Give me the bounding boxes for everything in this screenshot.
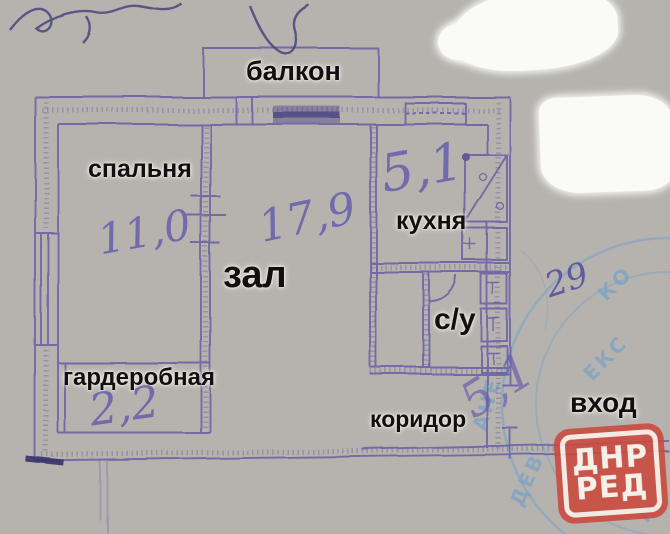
door-arc: [430, 275, 456, 301]
room-label-balcony: балкон: [246, 56, 341, 87]
pen-blob: [26, 459, 64, 463]
stamp-text-fragment: КО: [593, 261, 638, 306]
room-label-living-room: зал: [223, 254, 287, 297]
bedroom-window: [35, 233, 57, 345]
fixture: [481, 309, 507, 341]
stamp-text-fragment: ЕКС: [578, 330, 633, 385]
balcony-window-block: [273, 106, 340, 123]
floor-plan-photo: КО ЕКС АНЕ ДЕВ М: [0, 0, 670, 534]
pen-scribbles: [10, 4, 468, 54]
room-label-corridor: коридор: [370, 406, 466, 433]
fixture: [481, 274, 507, 304]
whiteout-patch: [438, 24, 478, 60]
room-label-bedroom: спальня: [88, 155, 192, 184]
dnr-red-watermark: ДНР РЕД: [553, 422, 669, 524]
room-label-bathroom: с/у: [434, 303, 476, 337]
area-value-wardrobe: 2,2: [86, 376, 162, 436]
room-label-kitchen: кухня: [396, 207, 466, 236]
kitchen-window: [405, 103, 465, 124]
watermark-line2: РЕД: [575, 471, 649, 504]
whiteout-patch: [538, 94, 670, 195]
room-label-entrance: вход: [570, 387, 637, 419]
